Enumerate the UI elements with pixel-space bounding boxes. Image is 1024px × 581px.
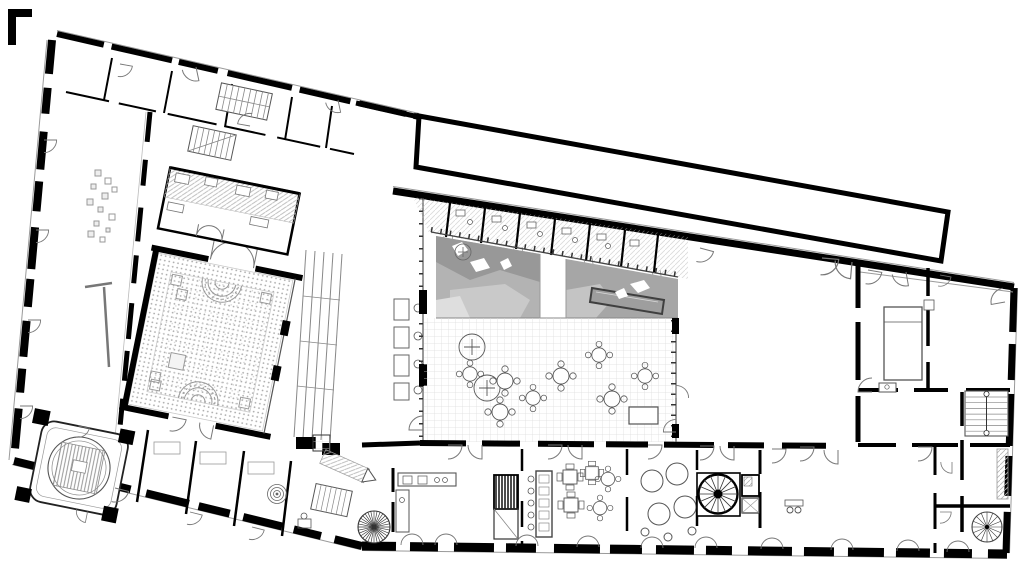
- door-arc: [326, 100, 341, 115]
- northwest-corner-pier: [8, 9, 32, 45]
- ramp-landings: [297, 296, 340, 390]
- east-stair: [965, 391, 1008, 436]
- door-arc: [940, 512, 951, 523]
- event-hall: [663, 248, 858, 444]
- service-shaft: [494, 475, 518, 509]
- hall-west-pier: [419, 290, 427, 314]
- floor-plan-page: [0, 0, 1024, 581]
- south-wc-fixtures: [785, 500, 803, 513]
- reception-desks: [394, 299, 409, 400]
- north-stair-lower: [188, 126, 236, 161]
- dome-oculus: [71, 460, 87, 474]
- door-arc: [568, 445, 582, 459]
- service-shaft-lower: [494, 509, 518, 539]
- floor-plan-canvas: [0, 0, 1024, 581]
- door-arc: [892, 272, 908, 288]
- hall-south-wall: [420, 443, 858, 446]
- door-arc: [800, 447, 814, 461]
- door-arc: [824, 450, 838, 464]
- entry-ramp: [320, 450, 379, 487]
- door-arc: [676, 385, 689, 398]
- south-facade-wall: [362, 546, 1007, 554]
- door-arc: [448, 445, 462, 459]
- sw-thresholds: [154, 442, 274, 474]
- north-jog-wall: [356, 103, 419, 117]
- glazing-pier: [672, 318, 679, 334]
- door-arc: [648, 445, 662, 459]
- south-wc-small: [298, 513, 311, 528]
- band-top-west: [362, 443, 420, 445]
- arcaded-courtyard: [117, 226, 307, 451]
- door-arc: [700, 446, 714, 460]
- door-arc: [772, 449, 786, 463]
- spiral-stair-main: [697, 473, 740, 516]
- dining-room: [557, 461, 621, 521]
- kitchen: [396, 473, 456, 532]
- south-stair: [311, 484, 353, 517]
- workshop-room: [158, 168, 300, 255]
- west-facade-wall: [14, 40, 52, 460]
- door-arc: [249, 527, 264, 542]
- door-arc: [182, 67, 199, 84]
- door-arc: [468, 445, 482, 459]
- door-arc: [696, 248, 713, 265]
- cafe-terrace: [420, 318, 858, 461]
- cafe-bench: [629, 407, 658, 424]
- spiral-stair-southeast: [972, 512, 1002, 542]
- door-arc: [918, 447, 932, 461]
- store-shelves: [997, 449, 1008, 499]
- door-arc: [118, 64, 133, 79]
- door-arc: [866, 270, 882, 286]
- spiral-stair-southwest: [355, 508, 393, 546]
- lounge-round-tables: [641, 463, 696, 541]
- kiosk-booth: [313, 435, 330, 451]
- door-arc: [197, 423, 213, 439]
- door-arc: [548, 445, 562, 459]
- exhibit-pedestals: [87, 170, 117, 242]
- bar-counter: [528, 471, 552, 537]
- east-sink: [879, 383, 896, 392]
- glazing-pier: [672, 424, 679, 438]
- reception-lobby: [394, 198, 427, 441]
- west-facade-face-line: [9, 40, 47, 460]
- door-arc: [941, 462, 952, 473]
- volute-stair: [268, 485, 287, 504]
- display-case: [85, 283, 112, 367]
- south-band: [298, 443, 969, 552]
- north-room-row: [66, 58, 354, 160]
- elevator: [742, 475, 759, 513]
- east-wing: [821, 258, 1013, 553]
- door-arc: [170, 417, 186, 433]
- door-arc: [187, 512, 202, 527]
